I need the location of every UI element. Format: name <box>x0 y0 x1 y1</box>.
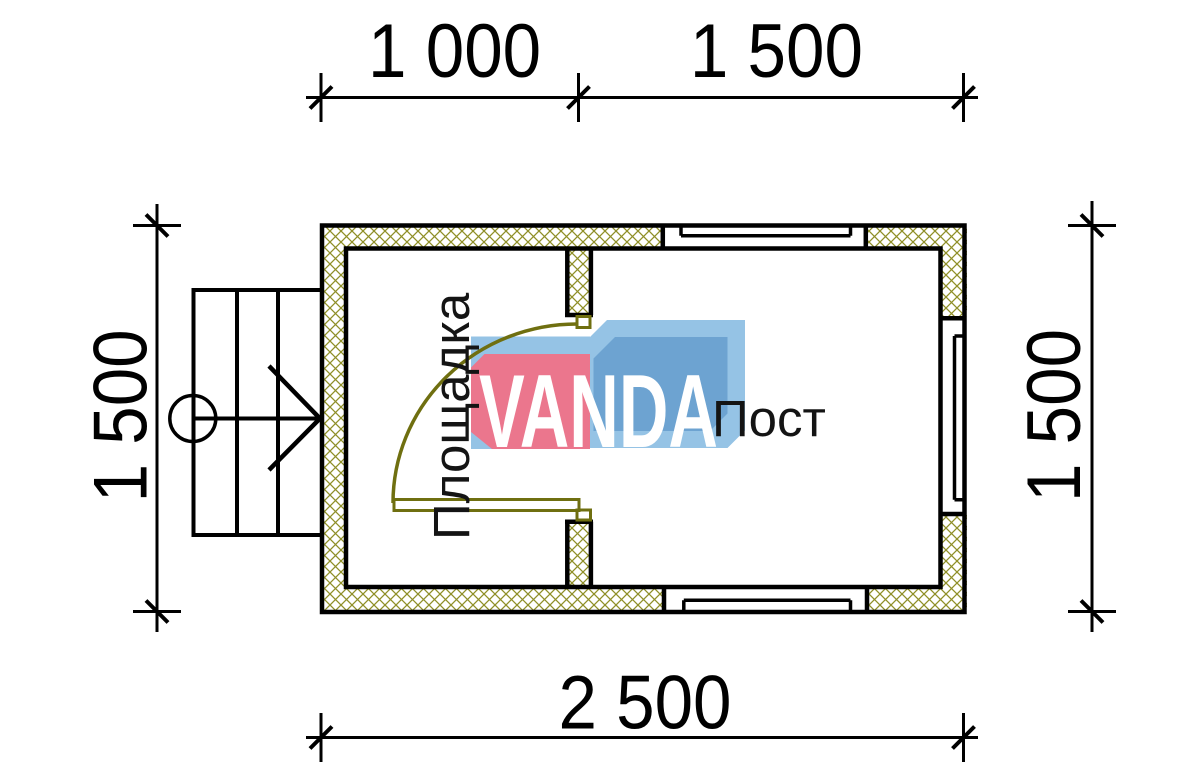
svg-text:1 000: 1 000 <box>368 9 541 94</box>
svg-text:1 500: 1 500 <box>1012 329 1097 502</box>
svg-text:Площадка: Площадка <box>423 292 480 540</box>
svg-text:2 500: 2 500 <box>558 661 731 746</box>
svg-text:1 500: 1 500 <box>690 9 863 94</box>
svg-text:1 500: 1 500 <box>79 329 164 502</box>
svg-text:Пост: Пост <box>712 390 826 447</box>
svg-text:VANDA: VANDA <box>479 353 718 470</box>
